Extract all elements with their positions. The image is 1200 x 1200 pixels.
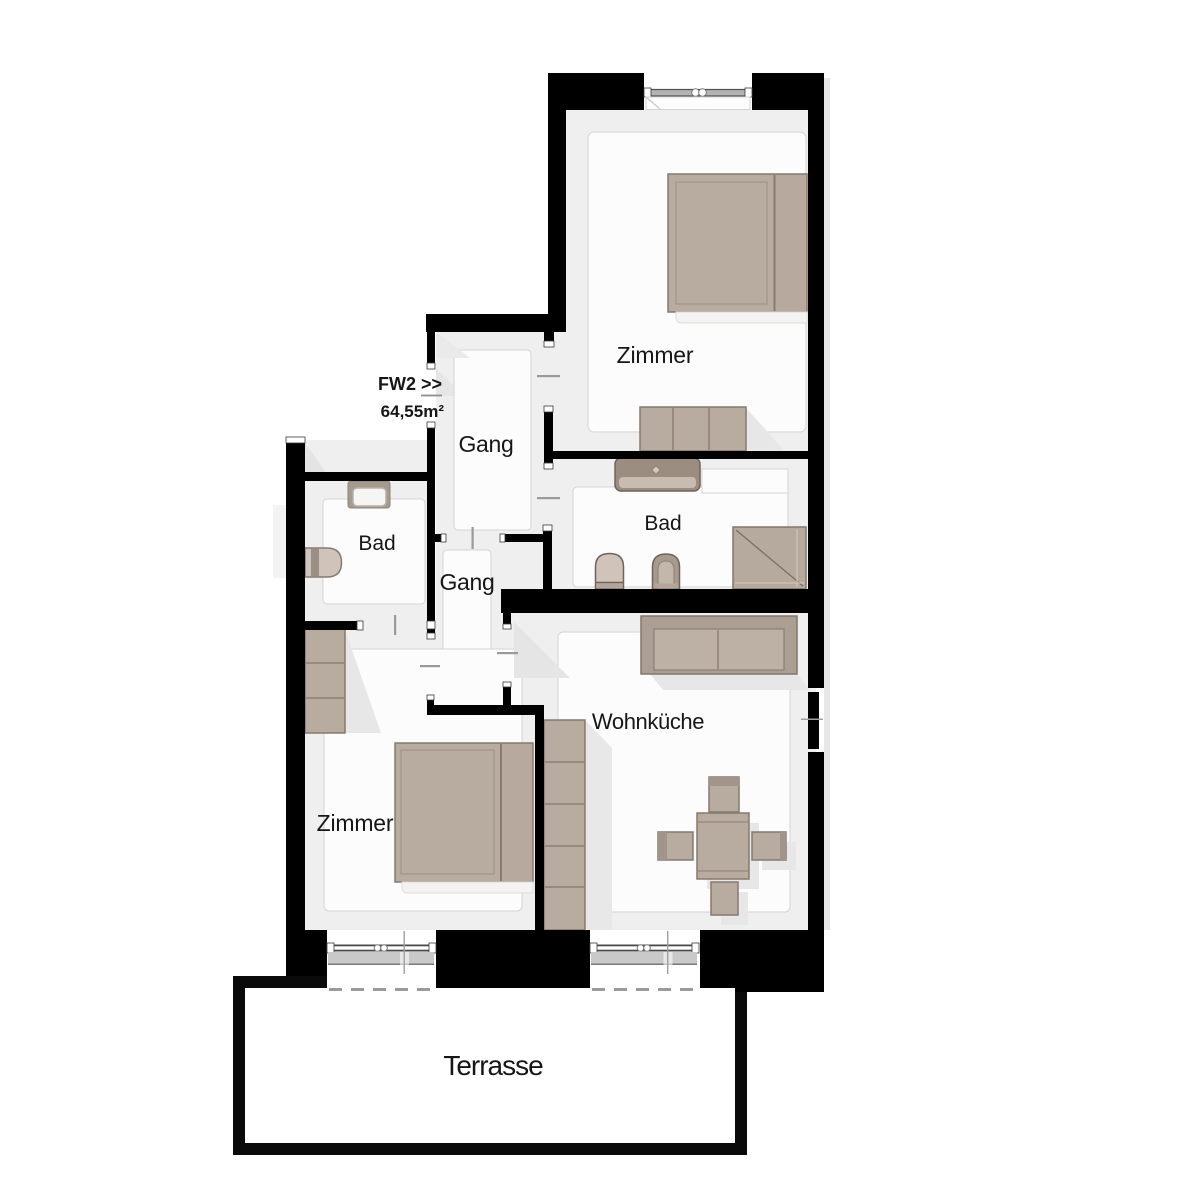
svg-text:Terrasse: Terrasse [443, 1050, 543, 1081]
svg-text:64,55m²: 64,55m² [381, 402, 445, 421]
svg-text:Gang: Gang [439, 569, 494, 595]
svg-text:Zimmer: Zimmer [317, 810, 394, 836]
svg-text:FW2 >>: FW2 >> [378, 374, 442, 394]
svg-text:Wohnküche: Wohnküche [592, 709, 704, 734]
svg-text:Gang: Gang [458, 431, 513, 457]
svg-text:Zimmer: Zimmer [617, 342, 694, 368]
svg-text:Bad: Bad [358, 532, 395, 555]
svg-text:Bad: Bad [644, 512, 681, 535]
